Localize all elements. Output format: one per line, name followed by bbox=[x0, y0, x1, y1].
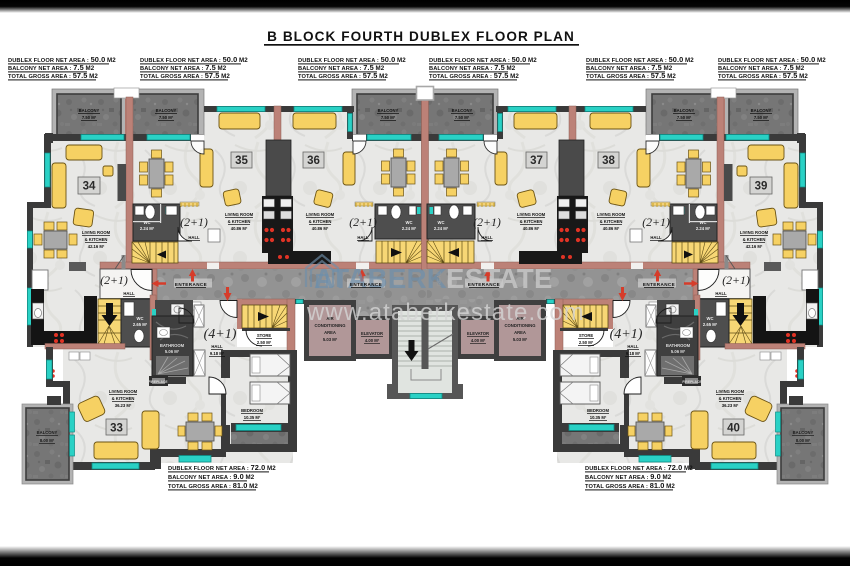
svg-text:WC: WC bbox=[438, 220, 445, 225]
svg-text:5.06 M²: 5.06 M² bbox=[165, 349, 180, 354]
svg-text:2.65 M²: 2.65 M² bbox=[133, 322, 148, 327]
svg-text:LIVING ROOM: LIVING ROOM bbox=[82, 230, 111, 235]
svg-text:HALL: HALL bbox=[211, 344, 223, 349]
svg-text:2.24 M²: 2.24 M² bbox=[402, 226, 417, 231]
svg-text:5.03 M²: 5.03 M² bbox=[323, 337, 338, 342]
svg-text:LIVING ROOM: LIVING ROOM bbox=[109, 389, 138, 394]
svg-text:HALL: HALL bbox=[188, 235, 200, 240]
svg-text:AREA: AREA bbox=[324, 330, 336, 335]
svg-text:WC: WC bbox=[137, 316, 144, 321]
svg-text:WC: WC bbox=[707, 316, 714, 321]
svg-text:B BLOCK FOURTH DUBLEX FLOOR PL: B BLOCK FOURTH DUBLEX FLOOR PLAN bbox=[267, 29, 575, 44]
svg-text:ELEVATOR: ELEVATOR bbox=[361, 331, 383, 336]
svg-text:2.65 M²: 2.65 M² bbox=[703, 322, 718, 327]
svg-text:WC: WC bbox=[700, 220, 707, 225]
svg-text:ENTERANCE: ENTERANCE bbox=[175, 282, 207, 287]
svg-text:ESTATE: ESTATE bbox=[446, 263, 553, 294]
svg-text:& KITCHEN: & KITCHEN bbox=[228, 219, 251, 224]
svg-text:FIREPLACE: FIREPLACE bbox=[148, 380, 168, 384]
svg-text:(4+1): (4+1) bbox=[610, 327, 643, 342]
svg-text:(2+1): (2+1) bbox=[180, 215, 208, 229]
svg-text:BATHROOM: BATHROOM bbox=[160, 343, 185, 348]
svg-text:(2+1): (2+1) bbox=[473, 215, 501, 229]
svg-text:WC: WC bbox=[144, 220, 151, 225]
svg-text:STORE: STORE bbox=[257, 333, 272, 338]
svg-text:FIREPLACE: FIREPLACE bbox=[682, 380, 702, 384]
svg-text:36.23 M²: 36.23 M² bbox=[115, 403, 132, 408]
svg-text:& KITCHEN: & KITCHEN bbox=[112, 396, 135, 401]
svg-text:(2+1): (2+1) bbox=[349, 215, 377, 229]
svg-text:4.00 M²: 4.00 M² bbox=[365, 338, 380, 343]
svg-text:WC: WC bbox=[406, 220, 413, 225]
svg-text:38: 38 bbox=[602, 155, 615, 167]
svg-text:36: 36 bbox=[307, 155, 320, 167]
svg-text:AIR: AIR bbox=[326, 316, 333, 321]
svg-text:2.50 M²: 2.50 M² bbox=[257, 340, 272, 345]
svg-text:7.50 M²: 7.50 M² bbox=[82, 115, 97, 120]
svg-text:LIVING ROOM: LIVING ROOM bbox=[225, 212, 254, 217]
svg-text:2.24 M²: 2.24 M² bbox=[696, 226, 711, 231]
svg-text:& KITCHEN: & KITCHEN bbox=[85, 237, 108, 242]
svg-text:8.00 M²: 8.00 M² bbox=[40, 438, 55, 443]
svg-text:HALL: HALL bbox=[123, 291, 135, 296]
svg-text:9.18 M²: 9.18 M² bbox=[210, 351, 225, 356]
svg-text:40: 40 bbox=[727, 423, 740, 435]
svg-text:(4+1): (4+1) bbox=[204, 327, 237, 342]
svg-text:(2+1): (2+1) bbox=[642, 215, 670, 229]
svg-text:REAL: REAL bbox=[437, 272, 443, 286]
svg-text:33: 33 bbox=[110, 423, 123, 435]
svg-text:www.ataberkestate.com: www.ataberkestate.com bbox=[306, 299, 585, 326]
svg-text:40.86 M²: 40.86 M² bbox=[231, 226, 248, 231]
svg-text:42.16 M²: 42.16 M² bbox=[88, 244, 105, 249]
svg-text:(2+1): (2+1) bbox=[100, 273, 128, 287]
svg-text:BALCONY: BALCONY bbox=[37, 430, 58, 435]
svg-text:34: 34 bbox=[83, 181, 96, 193]
svg-text:10.35 M²: 10.35 M² bbox=[244, 415, 261, 420]
svg-text:37: 37 bbox=[530, 155, 543, 167]
svg-text:BALCONY: BALCONY bbox=[79, 108, 100, 113]
svg-text:(2+1): (2+1) bbox=[722, 273, 750, 287]
svg-text:39: 39 bbox=[755, 181, 768, 193]
svg-text:BEDROOM: BEDROOM bbox=[241, 408, 263, 413]
svg-text:CONDITIONING: CONDITIONING bbox=[315, 323, 346, 328]
svg-text:2.24 M²: 2.24 M² bbox=[140, 226, 155, 231]
svg-text:2.24 M²: 2.24 M² bbox=[434, 226, 449, 231]
svg-text:ATABERK: ATABERK bbox=[314, 263, 447, 294]
svg-text:35: 35 bbox=[235, 155, 248, 167]
